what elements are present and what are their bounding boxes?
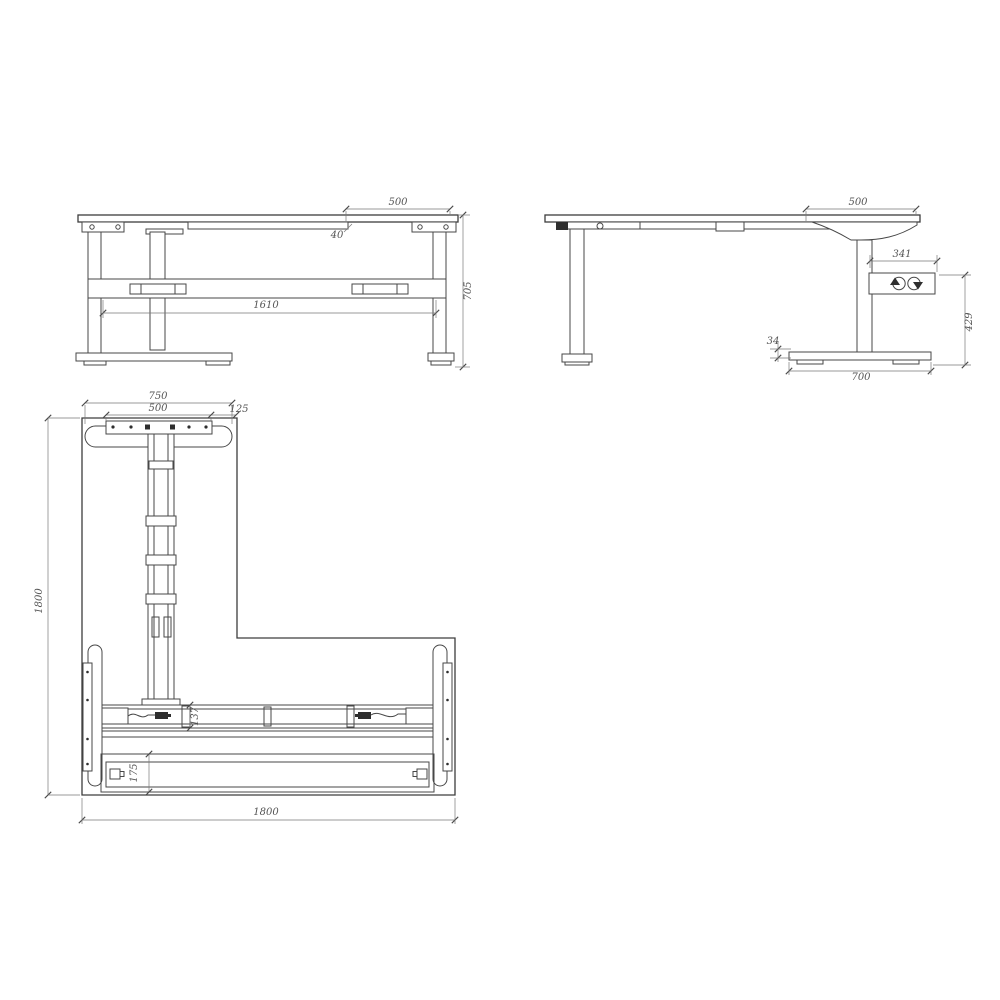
side-right-foot xyxy=(789,352,931,360)
front-crossbar xyxy=(88,279,446,298)
plan-desktop-outline xyxy=(82,418,455,795)
side-control-box xyxy=(869,273,935,294)
side-dim-429-label: 429 xyxy=(964,312,975,333)
front-dim-500-label: 500 xyxy=(388,197,408,208)
side-elevation-view: 500 341 429 34 700 xyxy=(545,197,975,383)
side-rail-connector xyxy=(716,222,744,231)
plan-dim-750-label: 750 xyxy=(148,391,168,402)
side-dim-500-label: 500 xyxy=(848,197,868,208)
bolt-icon xyxy=(145,425,150,430)
front-left-foot xyxy=(76,353,232,361)
front-dim-1610-label: 1610 xyxy=(253,300,279,311)
plan-dim-137-label: 137 xyxy=(190,706,201,726)
screw-icon xyxy=(446,699,449,702)
plan-column xyxy=(148,434,174,704)
screw-icon xyxy=(86,671,89,674)
front-left-foot-glide xyxy=(84,361,106,365)
front-right-foot-glide xyxy=(431,361,451,365)
plan-secondary-rail xyxy=(102,731,433,737)
side-dim-34-label: 34 xyxy=(767,336,780,347)
side-dim-700-label: 700 xyxy=(851,372,871,383)
plan-dim-1800-bottom-label: 1800 xyxy=(253,807,279,818)
screw-icon xyxy=(446,763,449,766)
cad-drawing: 500 40 1610 705 xyxy=(0,0,1000,1000)
side-left-bracket xyxy=(556,222,568,230)
mount-bracket-icon xyxy=(110,769,124,779)
screw-icon xyxy=(86,763,89,766)
front-dim-40-label: 40 xyxy=(330,230,344,241)
side-right-foot-glide xyxy=(893,360,919,364)
front-tabletop xyxy=(78,215,458,222)
plan-right-rail xyxy=(443,663,452,771)
plan-dim-1800-left-label: 1800 xyxy=(34,588,45,614)
front-under-rail xyxy=(188,222,348,229)
plug-icon xyxy=(358,712,371,719)
side-right-foot-glide xyxy=(797,360,823,364)
side-left-foot-glide xyxy=(565,362,589,365)
plan-column-joint xyxy=(149,461,173,469)
plug-icon xyxy=(155,712,168,719)
plan-column-connector xyxy=(146,594,176,604)
plan-dim-175-label: 175 xyxy=(129,763,140,782)
front-right-top-bracket xyxy=(412,222,456,232)
screw-icon xyxy=(129,425,132,428)
front-left-foot-glide xyxy=(206,361,230,365)
screw-icon xyxy=(86,699,89,702)
plan-left-rail xyxy=(83,663,92,771)
screw-icon xyxy=(111,425,114,428)
bolt-icon xyxy=(170,425,175,430)
plan-top-mounting-plate xyxy=(106,421,212,434)
screw-icon xyxy=(86,738,89,741)
front-elevation-view: 500 40 1610 705 xyxy=(76,197,474,370)
plan-view: 750 500 125 1800 1800 137 175 xyxy=(34,391,458,824)
side-left-foot xyxy=(562,354,592,362)
screw-icon xyxy=(446,738,449,741)
plan-column-connector xyxy=(146,555,176,565)
plan-fascia-panel xyxy=(101,754,434,792)
screw-icon xyxy=(187,425,190,428)
side-dim-341-label: 341 xyxy=(892,249,911,260)
plan-column-connector xyxy=(146,516,176,526)
side-top-support-bracket xyxy=(812,222,917,240)
front-dim-705-label: 705 xyxy=(463,281,474,300)
plan-dim-500-label: 500 xyxy=(148,403,168,414)
side-tabletop xyxy=(545,215,920,222)
front-right-foot xyxy=(428,353,454,361)
side-left-leg xyxy=(570,229,584,354)
screw-icon xyxy=(446,671,449,674)
drawing-canvas: 500 40 1610 705 xyxy=(0,0,1000,1000)
plan-fascia-inner xyxy=(106,762,429,787)
screw-icon xyxy=(204,425,207,428)
mount-bracket-icon xyxy=(413,769,427,779)
front-left-top-bracket xyxy=(82,222,124,232)
plan-dim-125-label: 125 xyxy=(229,404,248,415)
